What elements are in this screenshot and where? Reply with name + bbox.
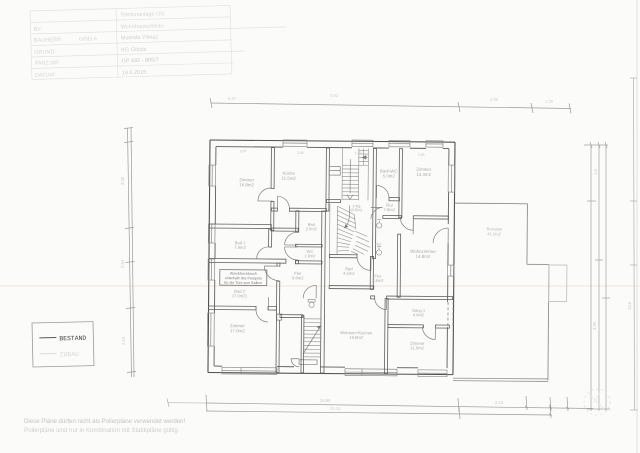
svg-text:4.5m2: 4.5m2	[343, 271, 355, 276]
svg-text:Wohnhausumbau: Wohnhausumbau	[120, 23, 163, 30]
svg-text:Mustafa Yilmaz: Mustafa Yilmaz	[121, 34, 159, 41]
svg-text:2,46: 2,46	[297, 151, 304, 155]
svg-text:11.5m2: 11.5m2	[281, 176, 296, 181]
svg-text:GRUND:: GRUND:	[34, 49, 56, 56]
svg-text:9,92: 9,92	[330, 93, 339, 98]
svg-text:1.6m2: 1.6m2	[304, 253, 316, 258]
svg-text:14.3m2: 14.3m2	[416, 172, 431, 177]
svg-text:1,35: 1,35	[545, 99, 554, 104]
svg-text:GP 492 - 865/7: GP 492 - 865/7	[121, 57, 158, 64]
svg-text:14.8m2: 14.8m2	[416, 254, 431, 259]
svg-text:10,5: 10,5	[627, 301, 632, 310]
svg-text:für die Türe zum Balkon: für die Türe zum Balkon	[224, 281, 262, 285]
svg-text:11.0m2: 11.0m2	[410, 345, 424, 350]
svg-text:3,30: 3,30	[120, 176, 125, 185]
svg-text:1,9: 1,9	[593, 169, 598, 175]
svg-text:2,95: 2,95	[418, 153, 425, 157]
svg-text:2,10: 2,10	[121, 336, 126, 345]
svg-text:(0.35m): (0.35m)	[351, 208, 363, 212]
svg-text:Telefonanlage OG: Telefonanlage OG	[120, 11, 164, 18]
svg-text:3,97: 3,97	[240, 149, 247, 153]
svg-text:19.6.2015: 19.6.2015	[122, 70, 147, 77]
svg-text:2,95: 2,95	[490, 97, 499, 102]
svg-text:1,45: 1,45	[355, 151, 362, 155]
svg-text:2.5m2: 2.5m2	[306, 226, 318, 231]
svg-text:BV:: BV:	[34, 27, 43, 33]
svg-text:Diese Pläne dürfen nicht als P: Diese Pläne dürfen nicht als Polierpläne…	[24, 418, 186, 425]
svg-text:(7.0m2): (7.0m2)	[232, 293, 247, 298]
svg-text:Wanddurchbruch: Wanddurchbruch	[230, 272, 257, 276]
svg-text:7.5m2: 7.5m2	[234, 245, 246, 250]
svg-text:DATUM:: DATUM:	[35, 72, 56, 79]
svg-text:Flur: Flur	[375, 242, 382, 246]
svg-text:2,15: 2,15	[495, 400, 504, 405]
svg-text:4.9m2: 4.9m2	[413, 312, 425, 317]
svg-text:2,64: 2,64	[120, 259, 125, 268]
svg-text:19.8m2: 19.8m2	[349, 335, 364, 340]
svg-text:Polierpläne sind nur in Kombin: Polierpläne sind nur in Kombination mit …	[24, 427, 178, 434]
svg-text:17.0m2: 17.0m2	[230, 328, 245, 333]
svg-text:GISELA: GISELA	[79, 36, 98, 43]
svg-text:16.8m2: 16.8m2	[239, 182, 254, 187]
svg-text:5.0m2: 5.0m2	[383, 174, 396, 179]
svg-text:BESTAND: BESTAND	[59, 335, 86, 343]
svg-text:9.6m2: 9.6m2	[292, 275, 304, 280]
svg-text:PARZ.NR:: PARZ.NR:	[34, 60, 60, 67]
svg-text:2.8m2: 2.8m2	[372, 278, 384, 283]
svg-text:BAUHERR:: BAUHERR:	[34, 37, 63, 44]
svg-text:7.8m2: 7.8m2	[384, 207, 396, 212]
svg-text:KG Götzis: KG Götzis	[121, 47, 146, 54]
svg-text:5,97: 5,97	[228, 96, 237, 101]
svg-text:25,10: 25,10	[330, 406, 341, 411]
svg-text:24,95: 24,95	[320, 398, 331, 403]
svg-text:ZUBAU: ZUBAU	[60, 351, 79, 358]
svg-text:41.0m2: 41.0m2	[487, 231, 502, 236]
svg-text:3,95: 3,95	[592, 321, 597, 330]
